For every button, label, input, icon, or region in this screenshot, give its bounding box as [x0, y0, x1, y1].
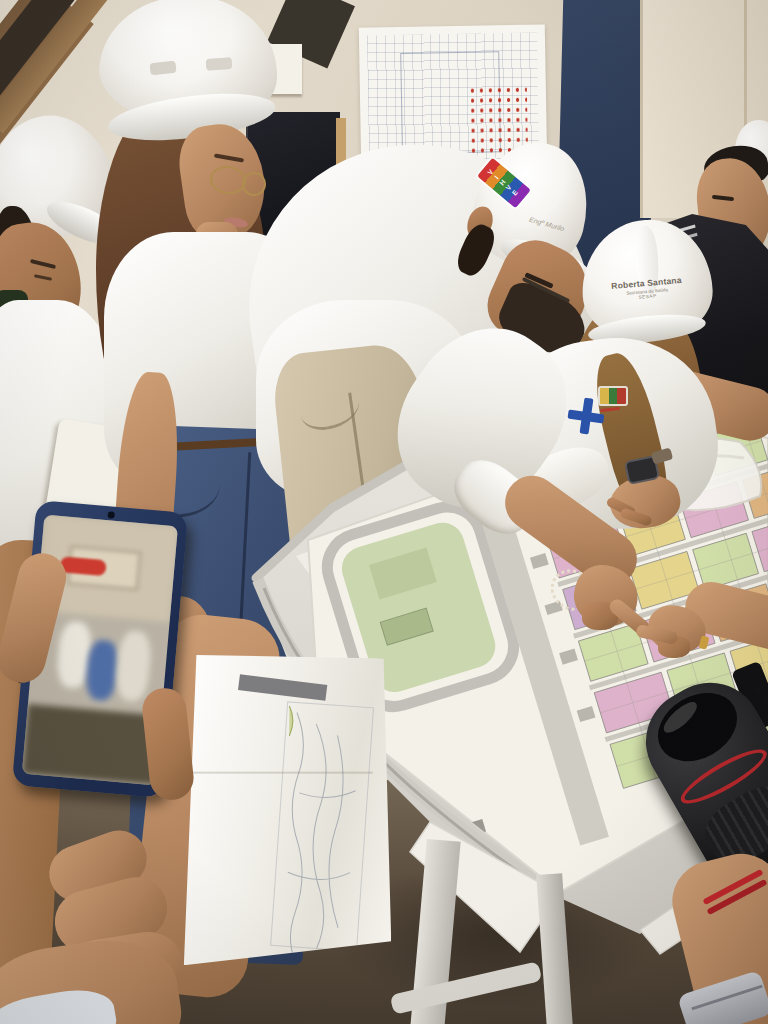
- phone-camera-dot: [107, 511, 115, 519]
- screen-floor-dark: [22, 704, 162, 785]
- fold-line: [193, 772, 373, 774]
- folded-plan-contours: [161, 644, 411, 979]
- uniform-patch: [598, 386, 628, 406]
- photo-canvas: VIHVE Engº Murilo Roberta Santana Secret…: [0, 0, 768, 1024]
- left-woman-helmet-slot2: [206, 57, 233, 71]
- screen-figure-white2: [115, 630, 153, 703]
- folded-plan-paper: [161, 644, 411, 979]
